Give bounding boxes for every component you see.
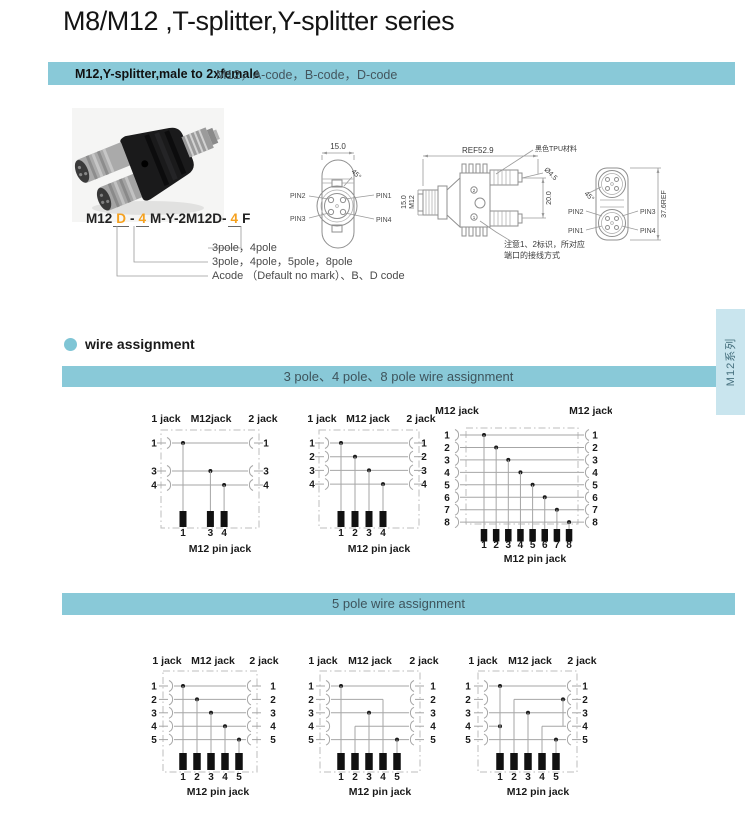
svg-text:3: 3: [270, 708, 276, 719]
svg-text:4: 4: [539, 772, 545, 783]
wire-assignment-heading: wire assignment: [64, 336, 195, 352]
svg-text:1: 1: [582, 682, 588, 693]
svg-text:2: 2: [465, 695, 471, 706]
svg-text:M12 jack: M12 jack: [508, 655, 552, 667]
front-pin1-label: PIN1: [376, 193, 392, 200]
svg-text:1 jack: 1 jack: [152, 655, 181, 667]
side-port2-mark: 2: [473, 188, 476, 193]
svg-text:3: 3: [151, 467, 157, 478]
part-number-variable: 4: [136, 211, 150, 227]
svg-text:4: 4: [221, 528, 227, 539]
svg-text:4: 4: [421, 480, 427, 491]
svg-text:1: 1: [421, 439, 427, 450]
svg-text:2 jack: 2 jack: [567, 655, 596, 667]
svg-text:2: 2: [194, 772, 200, 783]
svg-text:7: 7: [592, 505, 598, 516]
svg-text:M12 pin jack: M12 pin jack: [349, 786, 412, 798]
svg-text:4: 4: [270, 722, 276, 733]
svg-text:3: 3: [506, 540, 512, 551]
part-number: M12D-4M-Y-2M12D-4F: [85, 211, 251, 227]
rear-angle-dim: 45°: [583, 190, 596, 203]
svg-text:2: 2: [430, 695, 436, 706]
svg-text:2: 2: [151, 695, 157, 706]
svg-text:2: 2: [309, 452, 315, 463]
svg-text:5: 5: [530, 540, 536, 551]
side-thread-size: M12: [409, 195, 416, 209]
svg-text:3: 3: [465, 708, 471, 719]
svg-text:3: 3: [308, 708, 314, 719]
svg-text:1: 1: [444, 431, 450, 442]
svg-text:1: 1: [592, 431, 598, 442]
svg-text:4: 4: [308, 722, 314, 733]
svg-text:2: 2: [493, 540, 499, 551]
svg-text:M12jack: M12jack: [191, 413, 232, 425]
front-pin4-label: PIN4: [376, 217, 392, 224]
front-pin3-label: PIN3: [290, 216, 306, 223]
svg-text:7: 7: [444, 505, 450, 516]
svg-text:5: 5: [151, 735, 157, 746]
side-body-dim: 15.0: [401, 195, 408, 209]
svg-text:M12 jack: M12 jack: [191, 655, 235, 667]
svg-text:3: 3: [263, 467, 269, 478]
svg-text:5: 5: [465, 735, 471, 746]
svg-text:5: 5: [444, 480, 450, 491]
callout-pole-options-2: 3pole，4pole，5pole，8pole: [212, 256, 353, 268]
svg-text:2 jack: 2 jack: [406, 413, 435, 425]
svg-text:2: 2: [511, 772, 517, 783]
rear-height-dim: 37.6REF: [661, 190, 668, 218]
svg-text:1 jack: 1 jack: [151, 413, 180, 425]
svg-text:4: 4: [582, 722, 588, 733]
svg-text:2: 2: [592, 443, 598, 454]
rear-pin2-label: PIN2: [568, 209, 584, 216]
svg-text:5: 5: [430, 735, 436, 746]
svg-text:3: 3: [582, 708, 588, 719]
svg-text:1: 1: [308, 682, 314, 693]
svg-text:M12 pin jack: M12 pin jack: [507, 786, 570, 798]
svg-text:3: 3: [208, 528, 214, 539]
svg-text:3: 3: [592, 455, 598, 466]
svg-text:7: 7: [554, 540, 560, 551]
product-header-bar: M12,Y-splitter,male to 2xfemale M12，A-co…: [48, 62, 735, 85]
svg-text:1: 1: [338, 772, 344, 783]
svg-text:1 jack: 1 jack: [308, 655, 337, 667]
svg-text:5: 5: [394, 772, 400, 783]
callout-code-options: Acode （Default no mark）、B、D code: [212, 270, 405, 282]
svg-text:2 jack: 2 jack: [409, 655, 438, 667]
svg-text:4: 4: [380, 528, 386, 539]
svg-text:1: 1: [151, 682, 157, 693]
svg-text:3: 3: [151, 708, 157, 719]
series-tab-label: M12系列: [723, 338, 739, 386]
svg-text:5: 5: [236, 772, 242, 783]
rear-pin1-label: PIN1: [568, 228, 584, 235]
svg-text:4: 4: [309, 480, 315, 491]
product-codes: M12，A-code，B-code，D-code: [216, 64, 397, 83]
svg-text:M12 jack: M12 jack: [348, 655, 392, 667]
part-number-variable: 4: [228, 211, 242, 227]
series-tab: M12系列: [716, 309, 745, 415]
svg-text:8: 8: [566, 540, 572, 551]
svg-text:1: 1: [263, 439, 269, 450]
svg-text:2: 2: [352, 528, 358, 539]
svg-text:1: 1: [270, 682, 276, 693]
wiring-diagram-5pole-c: 1122334455123451 jackM12 jack2 jackM12 p…: [455, 652, 615, 812]
bar-348-pole: 3 pole、4 pole、8 pole wire assignment: [62, 366, 735, 387]
rear-pin4-label: PIN4: [640, 228, 656, 235]
svg-text:M12 jack: M12 jack: [435, 405, 479, 417]
svg-text:M12 jack: M12 jack: [346, 413, 390, 425]
svg-text:2 jack: 2 jack: [248, 413, 277, 425]
wiring-diagram-4pole: 1122334412341 jackM12 jack2 jackM12 pin …: [298, 406, 454, 568]
svg-text:8: 8: [444, 518, 450, 529]
rear-pin3-label: PIN3: [640, 209, 656, 216]
svg-text:5: 5: [582, 735, 588, 746]
svg-text:1 jack: 1 jack: [468, 655, 497, 667]
part-number-text: F: [241, 211, 251, 226]
side-pitch-dim: 20.0: [546, 191, 553, 205]
bullet-icon: [64, 338, 77, 351]
wiring-diagram-8pole: 112233445566778812345678M12 jackM12 jack…: [430, 402, 612, 570]
svg-text:1: 1: [481, 540, 487, 551]
svg-text:1: 1: [465, 682, 471, 693]
svg-text:4: 4: [263, 481, 269, 492]
callout-pole-options-1: 3pole，4pole: [212, 242, 277, 254]
svg-text:1: 1: [309, 439, 315, 450]
part-number-text: M12: [85, 211, 113, 226]
product-photo: [70, 106, 226, 224]
datasheet-page: M8/M12 ,T-splitter,Y-splitter series M12…: [0, 0, 750, 815]
svg-text:4: 4: [444, 468, 450, 479]
svg-text:M12 pin jack: M12 pin jack: [504, 553, 567, 565]
part-number-text: M-Y-2M12D-: [149, 211, 228, 226]
svg-text:4: 4: [592, 468, 598, 479]
svg-text:M12 pin jack: M12 pin jack: [189, 543, 252, 555]
page-title: M8/M12 ,T-splitter,Y-splitter series: [63, 6, 454, 37]
part-number-variable: D: [113, 211, 129, 227]
svg-text:6: 6: [592, 493, 598, 504]
svg-text:4: 4: [222, 772, 228, 783]
rear-view-drawing: 45° 37.6REF PIN2 PIN1 PIN3 PIN4: [560, 140, 747, 262]
wiring-diagram-5pole-b: 1122334455123451 jackM12 jack2 jackM12 p…: [298, 652, 456, 812]
svg-text:5: 5: [308, 735, 314, 746]
svg-text:3: 3: [421, 466, 427, 477]
wiring-diagram-5pole-a: 1122334455123451 jackM12 jack2 jackM12 p…: [140, 652, 296, 812]
wiring-diagram-3pole: 1133441341 jackM12jack2 jackM12 pin jack: [140, 406, 296, 568]
svg-text:6: 6: [542, 540, 548, 551]
svg-text:2: 2: [352, 772, 358, 783]
svg-text:3: 3: [444, 455, 450, 466]
svg-text:1: 1: [430, 682, 436, 693]
svg-text:4: 4: [518, 540, 524, 551]
svg-text:2: 2: [582, 695, 588, 706]
side-port1-mark: 1: [473, 215, 476, 220]
svg-text:2: 2: [308, 695, 314, 706]
svg-text:3: 3: [430, 708, 436, 719]
svg-text:3: 3: [309, 466, 315, 477]
svg-text:2 jack: 2 jack: [249, 655, 278, 667]
svg-text:1: 1: [497, 772, 503, 783]
side-hole-dim: Ø4.5: [543, 166, 559, 182]
front-pin2-label: PIN2: [290, 193, 306, 200]
svg-text:M12 pin jack: M12 pin jack: [187, 786, 250, 798]
svg-text:5: 5: [553, 772, 559, 783]
svg-text:6: 6: [444, 493, 450, 504]
side-note-line2: 端口的接线方式: [504, 250, 560, 260]
svg-text:3: 3: [208, 772, 214, 783]
front-width-dim: 15.0: [330, 142, 346, 151]
side-length-dim: REF52.9: [462, 146, 494, 155]
svg-text:1 jack: 1 jack: [307, 413, 336, 425]
svg-text:M12 pin jack: M12 pin jack: [348, 543, 411, 555]
svg-text:3: 3: [366, 528, 372, 539]
svg-text:8: 8: [592, 518, 598, 529]
svg-text:4: 4: [430, 722, 436, 733]
svg-text:1: 1: [180, 772, 186, 783]
svg-text:4: 4: [151, 722, 157, 733]
svg-text:4: 4: [465, 722, 471, 733]
svg-text:1: 1: [151, 439, 157, 450]
svg-text:5: 5: [592, 480, 598, 491]
svg-text:4: 4: [380, 772, 386, 783]
svg-text:1: 1: [338, 528, 344, 539]
svg-text:2: 2: [270, 695, 276, 706]
svg-text:1: 1: [180, 528, 186, 539]
svg-text:3: 3: [525, 772, 531, 783]
bar-5-pole: 5 pole wire assignment: [62, 593, 735, 615]
section-title: wire assignment: [85, 336, 195, 352]
svg-text:2: 2: [444, 443, 450, 454]
svg-text:4: 4: [151, 481, 157, 492]
svg-text:3: 3: [366, 772, 372, 783]
svg-text:M12 jack: M12 jack: [569, 405, 612, 417]
svg-text:5: 5: [270, 735, 276, 746]
svg-text:2: 2: [421, 452, 427, 463]
